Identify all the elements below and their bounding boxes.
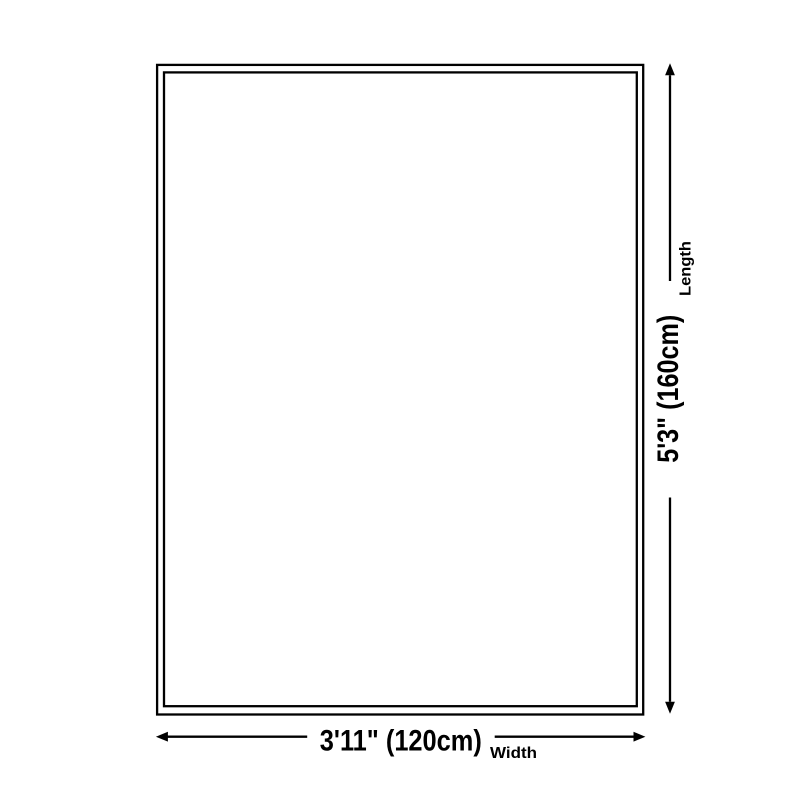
- svg-text:5'3" (160cm): 5'3" (160cm): [652, 315, 685, 463]
- svg-text:Length: Length: [678, 241, 695, 296]
- svg-text:Width: Width: [490, 745, 537, 762]
- svg-text:3'11" (120cm): 3'11" (120cm): [320, 724, 482, 757]
